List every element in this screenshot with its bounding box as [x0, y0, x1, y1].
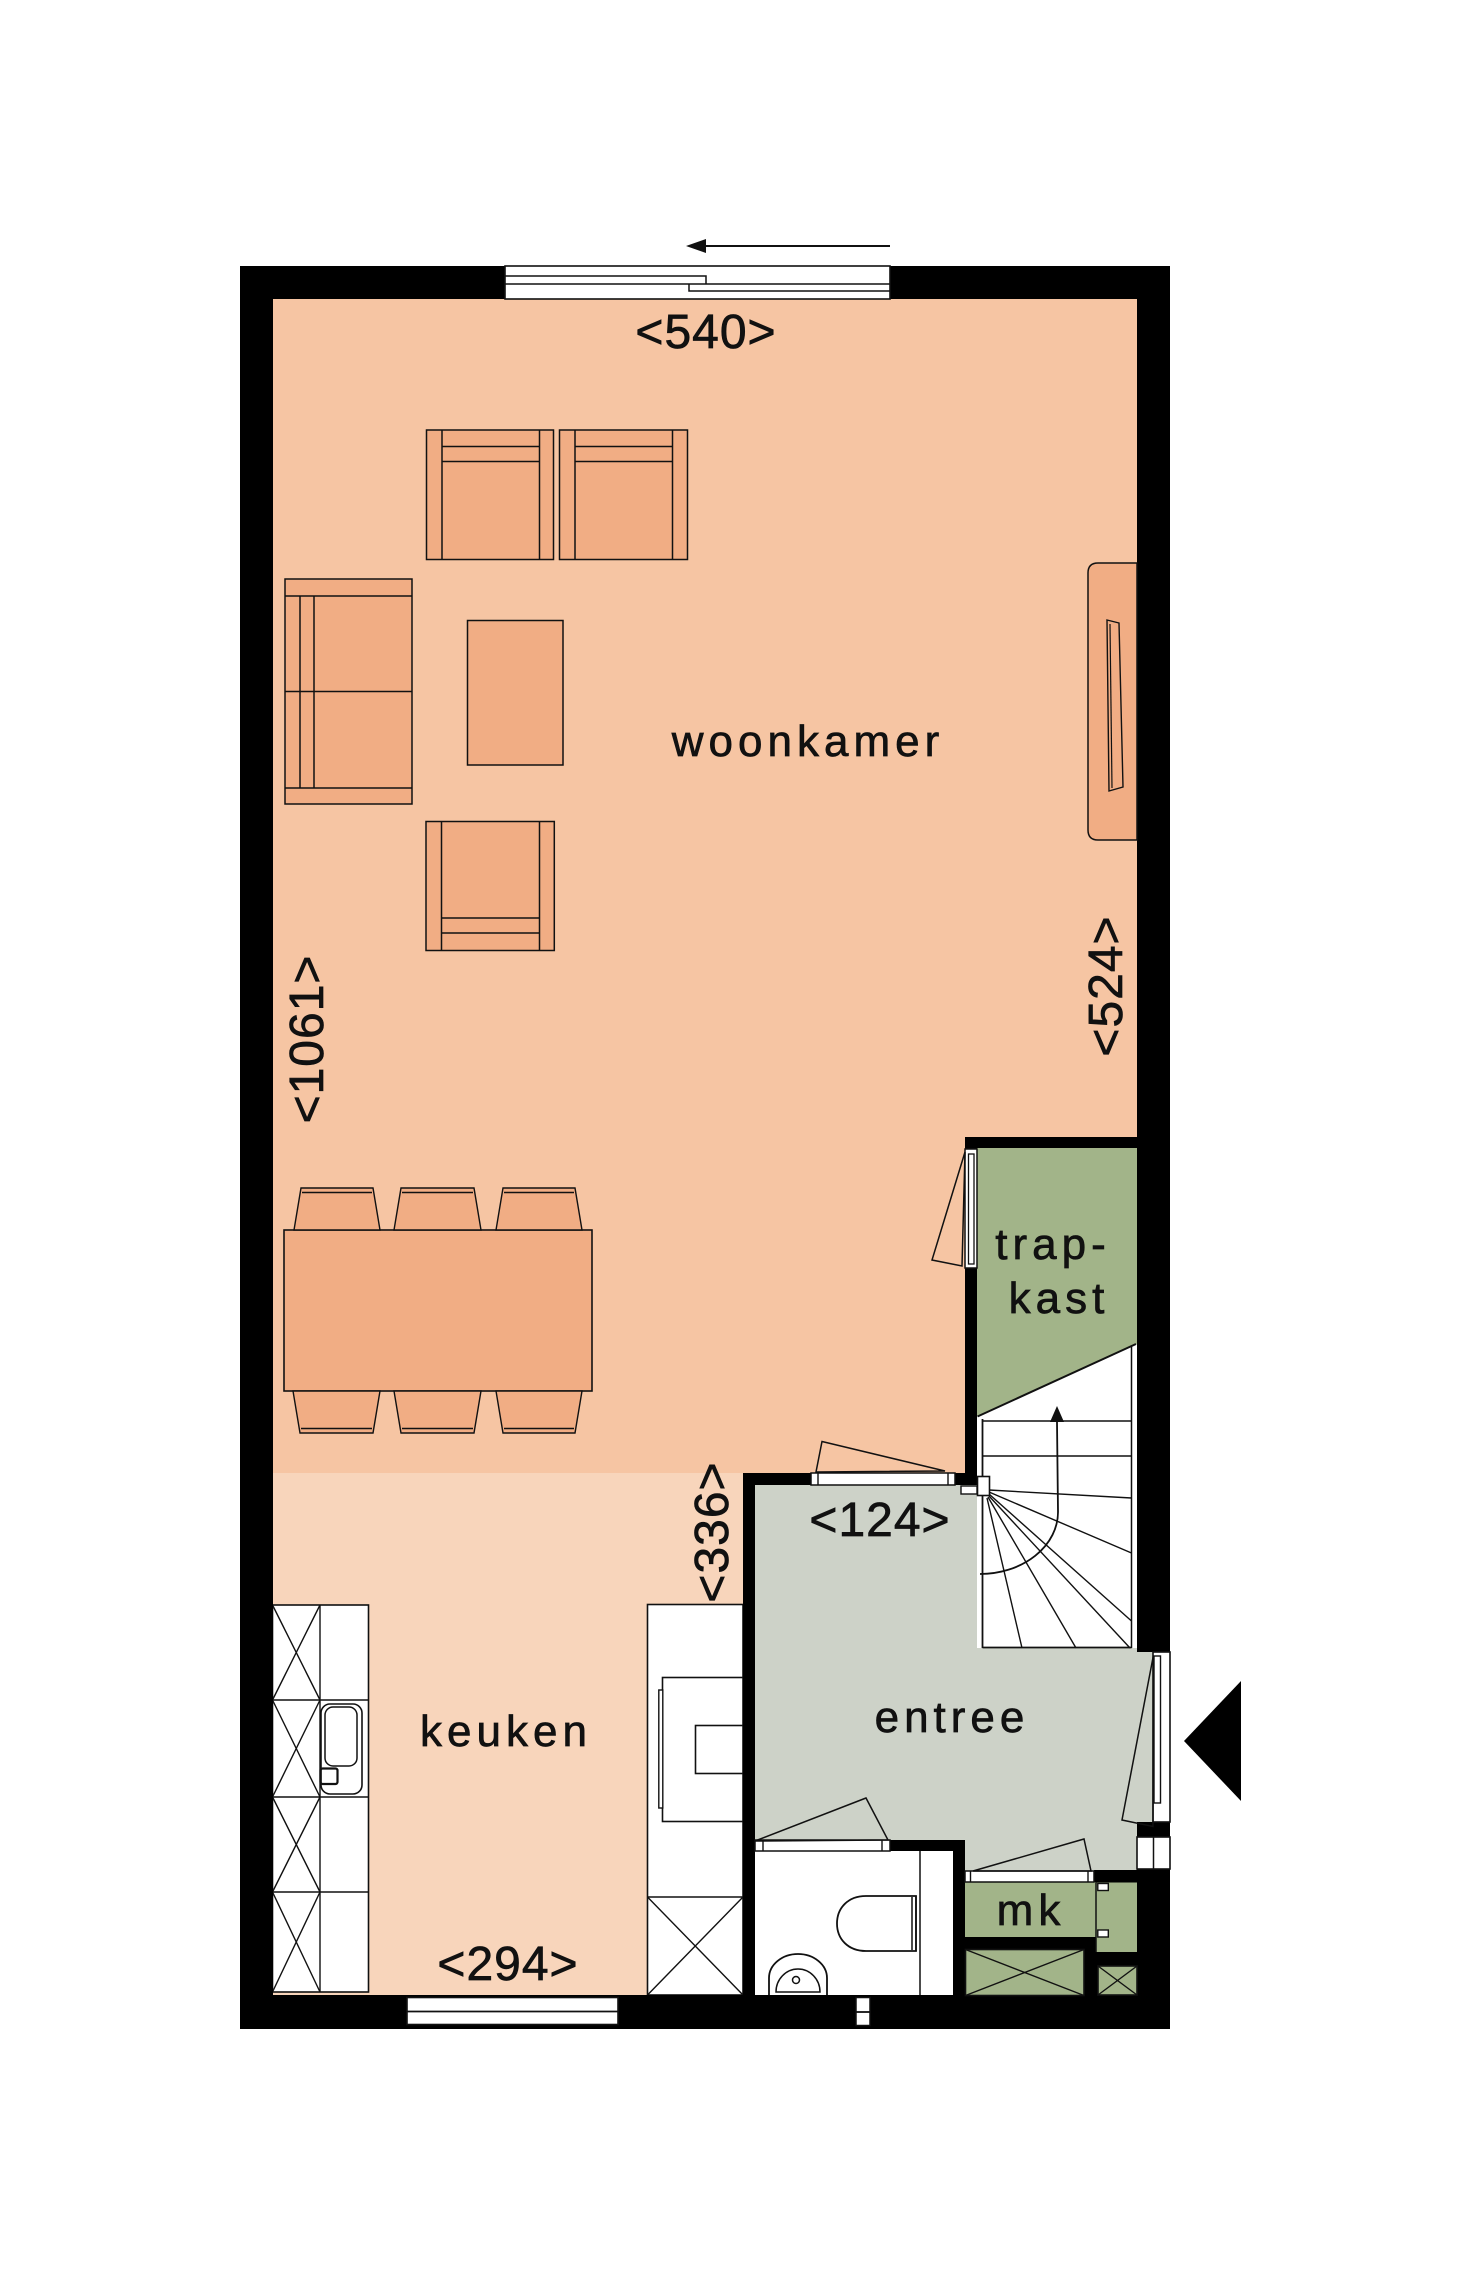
svg-text:kast: kast	[1009, 1274, 1110, 1323]
svg-text:<124>: <124>	[809, 1494, 950, 1547]
svg-text:woonkamer: woonkamer	[671, 717, 944, 766]
svg-text:<540>: <540>	[635, 306, 776, 359]
svg-text:<524>: <524>	[1080, 915, 1133, 1056]
svg-text:trap-: trap-	[995, 1220, 1110, 1269]
svg-text:<336>: <336>	[686, 1461, 739, 1602]
svg-text:<1061>: <1061>	[281, 955, 334, 1124]
svg-text:<294>: <294>	[437, 1938, 578, 1991]
svg-text:keuken: keuken	[420, 1707, 592, 1756]
svg-text:mk: mk	[997, 1886, 1066, 1935]
svg-text:entree: entree	[875, 1693, 1030, 1742]
